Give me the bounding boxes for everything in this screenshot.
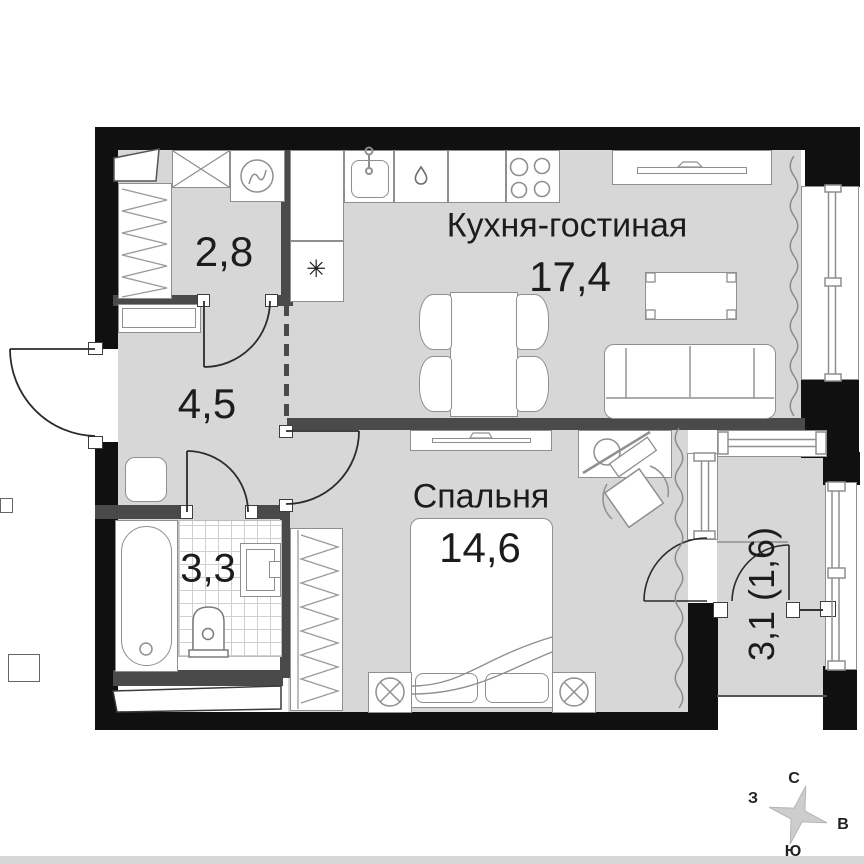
shaft-bathroom xyxy=(113,686,281,712)
jamb xyxy=(180,505,193,519)
jamb xyxy=(279,425,293,438)
room-label-kitchen-living: Кухня-гостиная xyxy=(447,207,688,246)
pouf-cabinet xyxy=(125,457,167,502)
dining-chair xyxy=(516,294,549,350)
exterior-mark-small xyxy=(0,498,13,513)
nightstand-left xyxy=(368,672,412,713)
pillow xyxy=(485,673,549,703)
jamb xyxy=(88,436,103,449)
wall-kitchen-bedroom xyxy=(287,418,805,430)
railing-post xyxy=(820,601,836,617)
window-living-room xyxy=(801,186,859,380)
wall-top-right-corner xyxy=(805,127,860,187)
fridge-icon: ✳ xyxy=(306,255,326,283)
counter-divider-3 xyxy=(505,151,507,202)
compass-rose: С В Ю З xyxy=(748,763,864,864)
dining-table xyxy=(450,292,518,417)
kitchen-sink xyxy=(351,160,389,198)
jamb xyxy=(265,294,278,307)
room-area-kitchen-living: 17,4 xyxy=(529,253,611,301)
wall-bathroom-top-left xyxy=(95,505,183,519)
exterior-mark xyxy=(8,654,40,682)
entrance-door xyxy=(10,349,95,436)
railing-post xyxy=(713,602,728,618)
floor-plan-canvas: Кухня-гостиная 17,4 2,8 4,5 Спальня 14,6… xyxy=(0,0,864,864)
jamb xyxy=(245,505,258,519)
dining-chair xyxy=(419,356,452,412)
kitchen-counter-divider xyxy=(291,240,343,242)
wall-left-upper xyxy=(95,127,118,349)
bathtub-inner xyxy=(121,526,172,666)
counter-divider-1 xyxy=(393,151,395,202)
wall-top xyxy=(95,127,810,150)
nightstand-right xyxy=(552,672,596,713)
railing-post xyxy=(786,602,800,618)
jamb xyxy=(279,499,293,512)
wall-bottom xyxy=(95,712,718,730)
room-area-dressing: 2,8 xyxy=(195,228,253,276)
compass-star-icon xyxy=(748,763,864,864)
wall-balcony-pier xyxy=(688,603,718,730)
room-area-loggia: 3,1 (1,6) xyxy=(741,527,783,661)
washbasin-tap xyxy=(269,561,281,578)
tv-living xyxy=(637,167,747,174)
dining-chair xyxy=(516,356,549,412)
bottom-edge-strip xyxy=(0,856,864,864)
desk xyxy=(578,430,672,478)
window-bedroom-loggia xyxy=(687,453,718,540)
wardrobe-bedroom xyxy=(290,528,343,711)
room-area-bathroom: 3,3 xyxy=(180,547,236,592)
tv-bedroom xyxy=(432,438,531,443)
linen-cabinet xyxy=(172,150,230,188)
counter-divider-2 xyxy=(447,151,449,202)
wall-bathroom-bottom xyxy=(113,670,283,686)
window-loggia-top xyxy=(717,430,827,457)
compass-west: З xyxy=(748,790,758,808)
jamb xyxy=(88,342,103,355)
wardrobe-hallway xyxy=(118,183,172,299)
room-area-hallway: 4,5 xyxy=(178,380,236,428)
room-label-bedroom: Спальня xyxy=(413,478,550,517)
compass-south: Ю xyxy=(785,843,802,861)
coffee-table xyxy=(645,272,737,320)
window-loggia-right xyxy=(825,482,857,670)
sofa xyxy=(604,344,776,419)
shoe-shelf-inner xyxy=(122,308,196,328)
room-area-bedroom: 14,6 xyxy=(439,524,521,572)
compass-north: С xyxy=(788,770,800,788)
wall-right-balcony-top xyxy=(823,452,860,485)
wall-right-balcony-bottom xyxy=(823,666,857,730)
pillow xyxy=(415,673,478,703)
dining-chair xyxy=(419,294,452,350)
jamb xyxy=(197,294,210,307)
compass-east: В xyxy=(837,816,849,834)
washing-machine xyxy=(230,150,285,202)
